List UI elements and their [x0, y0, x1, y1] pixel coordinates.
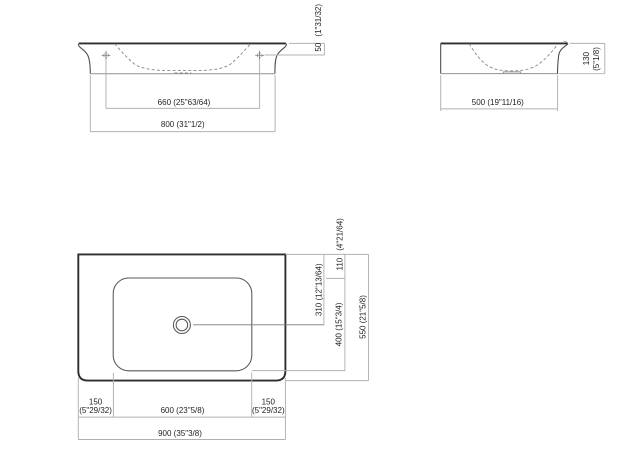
svg-text:550 (21"5/8): 550 (21"5/8): [359, 295, 368, 339]
svg-text:900 (35"3/8): 900 (35"3/8): [158, 429, 202, 438]
svg-text:660 (25"63/64): 660 (25"63/64): [158, 98, 211, 107]
svg-text:600 (23"5/8): 600 (23"5/8): [161, 406, 205, 415]
svg-text:50: 50: [314, 42, 323, 51]
svg-text:110: 110: [336, 257, 345, 270]
svg-text:(5"1/8): (5"1/8): [592, 47, 601, 71]
svg-text:500 (19"11/16): 500 (19"11/16): [472, 98, 524, 107]
svg-text:400 (15"3/4): 400 (15"3/4): [335, 302, 344, 346]
svg-text:150: 150: [262, 397, 276, 406]
svg-text:800 (31"1/2): 800 (31"1/2): [161, 120, 205, 129]
svg-text:(5"29/32): (5"29/32): [79, 406, 112, 415]
svg-text:(4"21/64): (4"21/64): [336, 218, 345, 251]
svg-text:(1"31/32): (1"31/32): [314, 4, 323, 37]
svg-text:(5"29/32): (5"29/32): [252, 406, 285, 415]
svg-text:310 (12"13/64): 310 (12"13/64): [315, 263, 324, 316]
svg-text:130: 130: [582, 51, 591, 65]
svg-text:150: 150: [89, 397, 103, 406]
